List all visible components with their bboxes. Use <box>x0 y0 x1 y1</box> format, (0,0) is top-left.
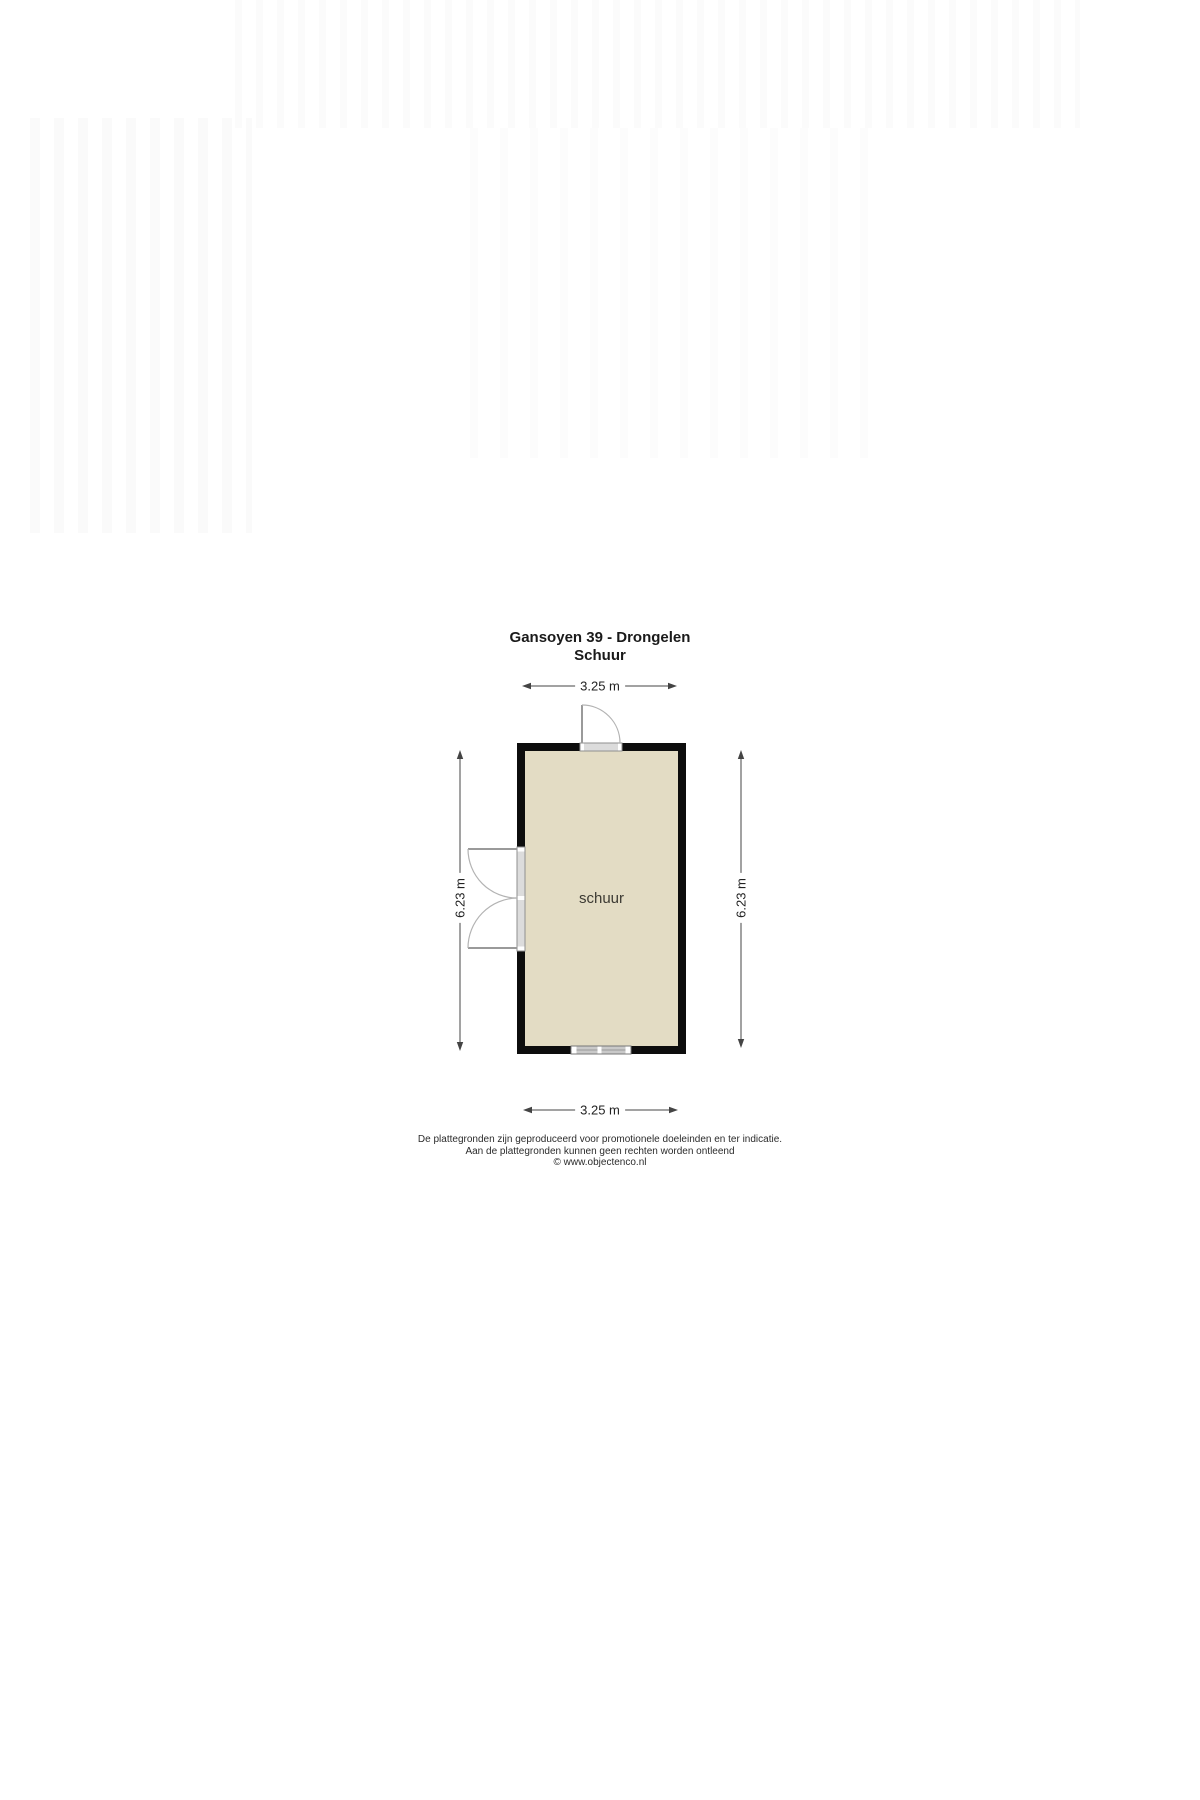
page-title: Gansoyen 39 - Drongelen Schuur <box>0 629 1200 665</box>
door-top <box>582 705 620 743</box>
background-artifact <box>470 128 880 458</box>
floorplan-page: Gansoyen 39 - Drongelen Schuur schuur <box>0 0 1200 1800</box>
background-artifact <box>235 0 1080 128</box>
title-floor-name: Schuur <box>0 647 1200 665</box>
dimension-label-right: 6.23 m <box>734 873 749 923</box>
footer-disclaimer: De plattegronden zijn geproduceerd voor … <box>0 1134 1200 1169</box>
background-artifact <box>30 118 252 533</box>
double-door-left <box>468 849 517 948</box>
dimension-label-bottom: 3.25 m <box>575 1103 625 1118</box>
room-label: schuur <box>579 890 624 907</box>
dimension-label-left: 6.23 m <box>453 873 468 923</box>
disclaimer-line-1: De plattegronden zijn geproduceerd voor … <box>0 1134 1200 1146</box>
title-address: Gansoyen 39 - Drongelen <box>0 629 1200 647</box>
dimension-label-top: 3.25 m <box>575 679 625 694</box>
room-schuur: schuur <box>517 743 686 1054</box>
disclaimer-line-2: Aan de plattegronden kunnen geen rechten… <box>0 1146 1200 1158</box>
disclaimer-copyright: © www.objectenco.nl <box>0 1157 1200 1169</box>
